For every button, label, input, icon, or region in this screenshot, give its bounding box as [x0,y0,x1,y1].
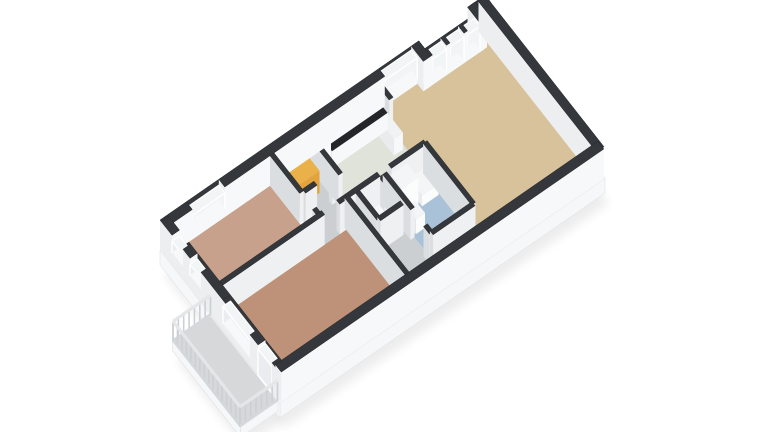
floorplan-3d-viewport [0,0,768,432]
floorplan-3d-view [0,0,768,432]
wall-bedroom1-right-a-side [300,191,304,224]
wall-step-a-side [423,56,431,91]
wall-bedroom-sep-b-side [337,200,340,234]
wall-bath-left-a-side [411,207,415,240]
